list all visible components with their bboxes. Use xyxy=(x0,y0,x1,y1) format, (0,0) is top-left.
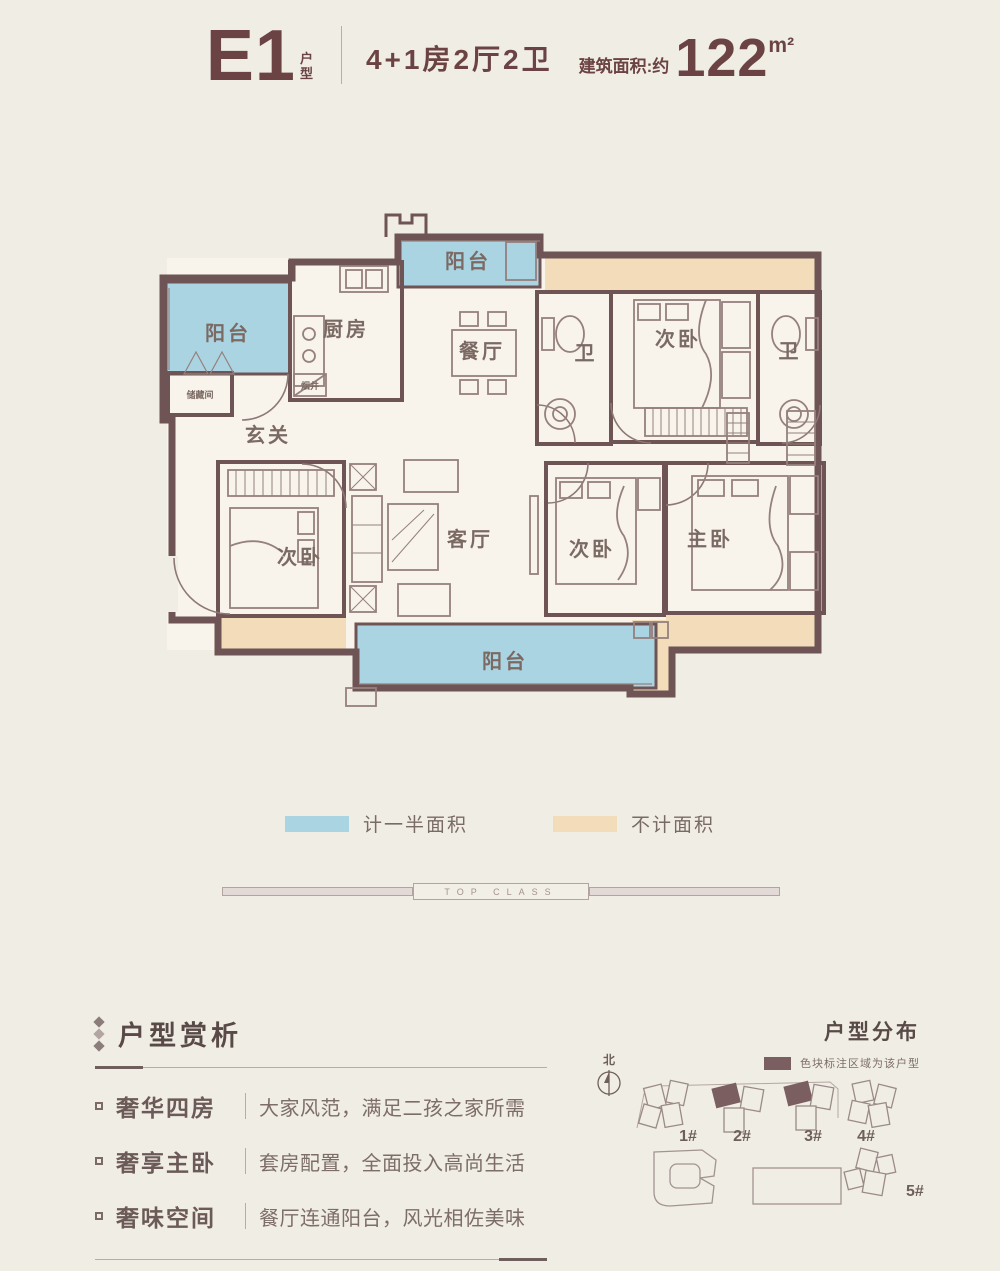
square-icon xyxy=(95,1212,103,1220)
building-4 xyxy=(848,1080,896,1127)
divider-bar-left xyxy=(222,887,413,896)
analysis-rule xyxy=(95,1067,547,1068)
excluded-area-swatch xyxy=(553,816,617,832)
label-balcony-left: 阳台 xyxy=(205,321,251,345)
site-map: 北 xyxy=(598,1052,924,1206)
building-1 xyxy=(639,1080,688,1128)
label-kitchen: 厨房 xyxy=(323,317,369,341)
analysis-item-separator xyxy=(245,1093,246,1119)
analysis-item-desc: 套房配置，全面投入高尚生活 xyxy=(259,1147,526,1176)
building-label-4: 4# xyxy=(857,1128,875,1145)
label-dining: 餐厅 xyxy=(459,339,505,363)
area-legend: 计一半面积 不计面积 xyxy=(0,810,1000,837)
label-master: 主卧 xyxy=(687,527,733,551)
divider-bar-right xyxy=(589,887,780,896)
excluded-area-label: 不计面积 xyxy=(631,810,715,837)
half-area-swatch xyxy=(285,816,349,832)
analysis-bottom-rule xyxy=(95,1259,547,1260)
label-bedroom-top: 次卧 xyxy=(655,327,701,351)
half-area-label: 计一半面积 xyxy=(363,810,468,837)
label-balcony-top: 阳台 xyxy=(445,249,491,273)
highlight-swatch xyxy=(764,1057,791,1070)
building-3 xyxy=(784,1081,834,1130)
analysis-item-title: 奢享主卧 xyxy=(116,1144,232,1178)
analysis-item-desc: 餐厅连通阳台，风光相佐美味 xyxy=(259,1202,526,1231)
highlighted-unit xyxy=(784,1081,812,1105)
building-label-2: 2# xyxy=(733,1128,751,1145)
analysis-title: 户型赏析 xyxy=(118,1014,242,1053)
distribution-section: 户型分布 色块标注区域为该户型 xyxy=(600,1016,920,1071)
analysis-item: 奢享主卧 套房配置，全面投入高尚生活 xyxy=(95,1144,547,1178)
square-icon xyxy=(95,1102,103,1110)
building-amenity xyxy=(654,1150,841,1206)
distribution-title: 户型分布 xyxy=(600,1016,920,1046)
label-storage: 储藏间 xyxy=(186,389,213,400)
building-5 xyxy=(844,1148,896,1195)
square-icon xyxy=(95,1157,103,1165)
analysis-item-desc: 大家风范，满足二孩之家所需 xyxy=(259,1092,526,1121)
label-flue: 烟井 xyxy=(301,380,319,391)
building-label-1: 1# xyxy=(679,1128,697,1145)
analysis-item-separator xyxy=(245,1203,246,1229)
label-balcony-bottom: 阳台 xyxy=(482,649,528,673)
floorplan-poster: E1 户 型 4+1房2厅2卫 建筑面积:约 122 m² xyxy=(0,0,1000,1271)
legend-half-area: 计一半面积 xyxy=(285,810,468,837)
analysis-item-title: 奢味空间 xyxy=(116,1199,232,1233)
label-bath-left: 卫 xyxy=(575,343,598,365)
label-bedroom-left: 次卧 xyxy=(277,545,323,569)
entrance-opening xyxy=(166,556,178,612)
building-label-3: 3# xyxy=(804,1128,822,1145)
building-label-5: 5# xyxy=(906,1183,924,1200)
analysis-item-separator xyxy=(245,1148,246,1174)
label-bedroom-mid: 次卧 xyxy=(569,537,615,561)
diamond-chain-icon xyxy=(95,1016,103,1052)
label-living: 客厅 xyxy=(446,527,493,551)
label-entry: 玄关 xyxy=(245,423,291,447)
analysis-header: 户型赏析 xyxy=(95,1014,547,1053)
analysis-item: 奢味空间 餐厅连通阳台，风光相佐美味 xyxy=(95,1199,547,1233)
floor-plan: 阳台 储藏间 烟井 厨房 阳台 餐厅 卫 次卧 卫 玄关 次卧 客厅 次卧 主卧… xyxy=(163,215,824,706)
highlighted-unit xyxy=(712,1083,740,1107)
legend-excluded-area: 不计面积 xyxy=(553,810,715,837)
divider-text: TOP CLASS xyxy=(413,883,588,900)
analysis-item: 奢华四房 大家风范，满足二孩之家所需 xyxy=(95,1089,547,1123)
label-bath-right: 卫 xyxy=(779,341,802,363)
distribution-legend: 色块标注区域为该户型 xyxy=(600,1055,920,1071)
topclass-divider: TOP CLASS xyxy=(222,883,780,900)
distribution-legend-text: 色块标注区域为该户型 xyxy=(800,1055,920,1071)
analysis-section: 户型赏析 奢华四房 大家风范，满足二孩之家所需 奢享主卧 套房配置，全面投入高尚… xyxy=(95,1014,547,1260)
building-2 xyxy=(712,1083,764,1132)
analysis-item-title: 奢华四房 xyxy=(116,1089,232,1123)
